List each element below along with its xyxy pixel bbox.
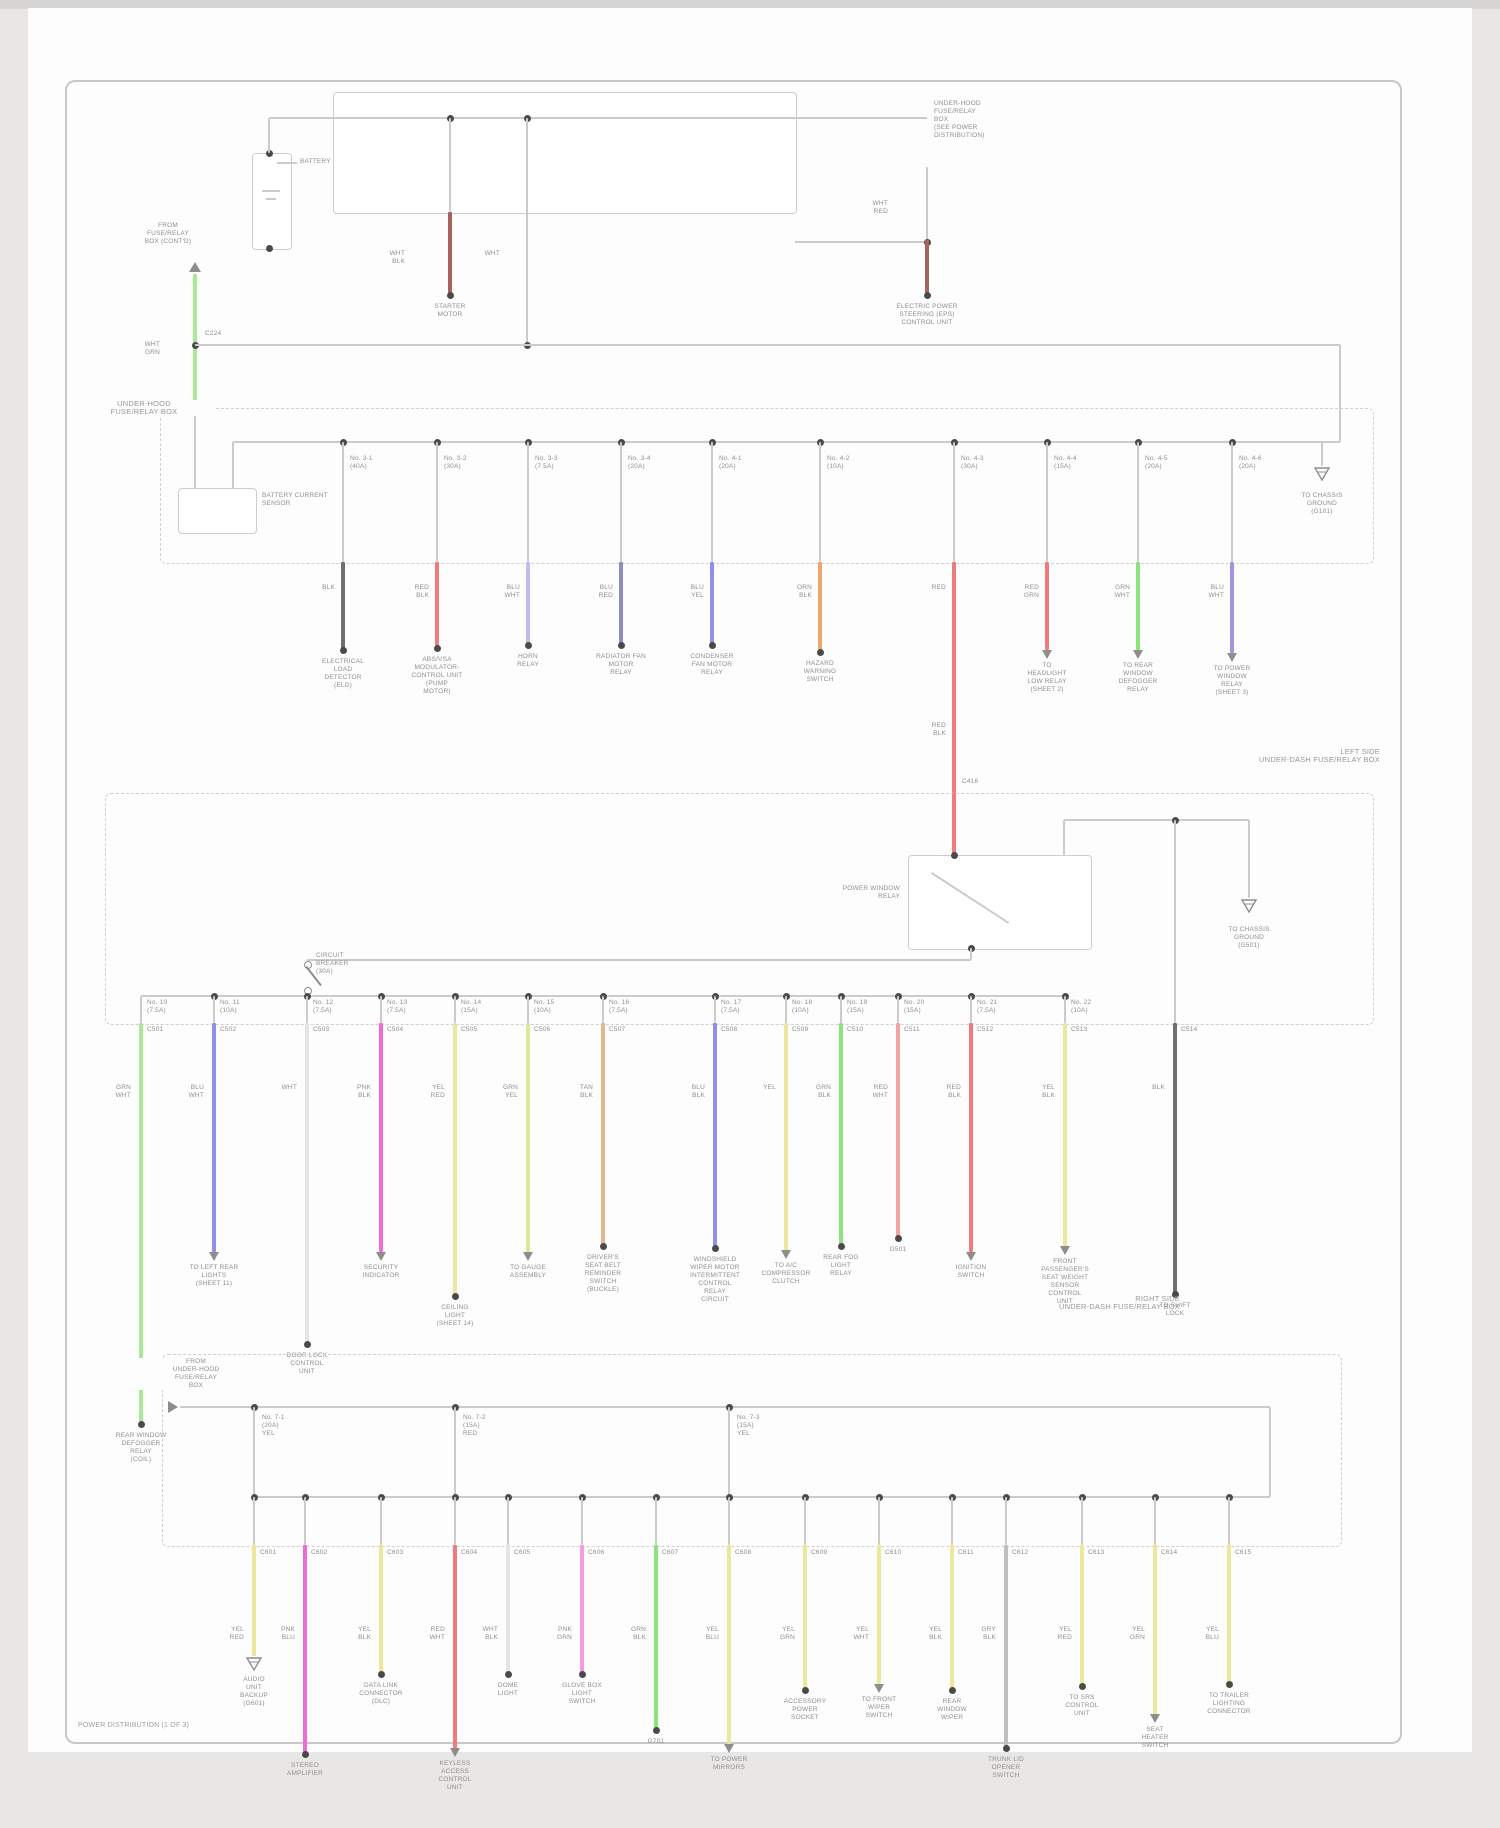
wire-color-label: GRN WHT	[116, 1084, 131, 1100]
terminal-dot	[452, 1293, 459, 1300]
wire-segment	[1005, 1497, 1007, 1545]
wire-segment	[714, 996, 716, 1023]
wire-color-label: WHT GRN	[145, 341, 160, 357]
wire-colored	[526, 1023, 530, 1252]
wire-color-label: YEL	[763, 1084, 776, 1092]
fuse-label: No. 3-4 (20A)	[628, 455, 651, 471]
wire-colored	[1173, 1023, 1177, 1294]
wire-segment	[380, 996, 382, 1023]
wire-color-label: PNK GRN	[557, 1626, 572, 1642]
fuse-label: No. 4-6 (20A)	[1239, 455, 1262, 471]
battery-current-sensor-box	[178, 488, 257, 534]
wire-colored	[877, 1545, 881, 1684]
wire-color-label: RED	[932, 584, 946, 592]
wire-segment	[970, 996, 972, 1023]
connector-arrow-icon	[1133, 650, 1143, 659]
component-label: KEYLESS ACCESS CONTROL UNIT	[385, 1760, 525, 1792]
wire-segment	[728, 1497, 730, 1545]
wire-color-label: WHT RED	[873, 200, 888, 216]
wire-color-label: YEL GRN	[1130, 1626, 1145, 1642]
terminal-dot	[1079, 1683, 1086, 1690]
connector-id-label: C601	[260, 1549, 276, 1557]
component-label: TO SRS CONTROL UNIT	[1012, 1694, 1152, 1718]
connector-id-label: C501	[147, 1026, 163, 1034]
terminal-dot	[138, 1421, 145, 1428]
wire-color-label: BLU WHT	[189, 1084, 204, 1100]
wire-color-label: RED WHT	[873, 1084, 888, 1100]
wire-segment	[840, 996, 842, 1023]
component-label: REAR FOG LIGHT RELAY	[771, 1254, 911, 1278]
connector-id-label: C511	[904, 1026, 920, 1034]
connector-arrow-icon	[1060, 1246, 1070, 1255]
connector-id-label: C614	[1161, 1549, 1177, 1557]
connector-arrow-icon	[874, 1684, 884, 1693]
wire-segment	[1228, 1497, 1230, 1545]
fuse-label: No. 19 (15A)	[847, 999, 867, 1015]
wire-colored	[710, 562, 714, 645]
driver-underdash-box-outline	[105, 793, 1374, 1025]
wire-segment	[926, 167, 928, 240]
connector-id-label: C613	[1088, 1549, 1104, 1557]
connector-id-label: C416	[962, 778, 978, 786]
wire-colored	[1227, 1545, 1231, 1684]
wire-colored	[1230, 562, 1234, 653]
wire-color-label: BLU BLK	[692, 1084, 705, 1100]
component-label: STARTER MOTOR	[380, 303, 520, 319]
relay-label: POWER WINDOW RELAY	[843, 885, 900, 901]
label-leader-line	[277, 162, 297, 164]
wire-dark-red	[925, 240, 929, 293]
wire-color-label: WHT	[282, 1084, 297, 1092]
wire-color-label: YEL BLU	[706, 1626, 719, 1642]
component-label: G501	[828, 1246, 968, 1254]
wire-colored	[713, 1023, 717, 1248]
connector-id-label: C605	[514, 1549, 530, 1557]
relay-terminal-dot	[951, 852, 958, 859]
terminal-dot	[895, 1235, 902, 1242]
wire-colored	[839, 1023, 843, 1246]
connector-id-label: C612	[1012, 1549, 1028, 1557]
fuse-label: No. 18 (10A)	[792, 999, 812, 1015]
wire-color-label: RED BLK	[932, 722, 946, 738]
wire-segment	[1248, 820, 1250, 898]
wire-segment	[436, 442, 438, 562]
page-caption: POWER DISTRIBUTION (1 OF 3)	[78, 1722, 189, 1730]
wire-segment	[819, 442, 821, 562]
component-label: TRUNK LID OPENER SWITCH	[936, 1756, 1076, 1780]
connector-id-label: C604	[461, 1549, 477, 1557]
connector-id-label: C508	[721, 1026, 737, 1034]
connector-arrow-icon	[376, 1252, 386, 1261]
wire-color-label: YEL GRN	[780, 1626, 795, 1642]
component-label: GLOVE BOX LIGHT SWITCH	[512, 1682, 652, 1706]
wire-segment	[213, 996, 215, 1023]
fuse-label: No. 7-1 (20A) YEL	[262, 1414, 285, 1438]
section-caption: RIGHT SIDE UNDER-DASH FUSE/RELAY BOX	[1059, 1295, 1180, 1311]
wire-colored	[601, 1023, 605, 1246]
section-caption: LEFT SIDE UNDER-DASH FUSE/RELAY BOX	[1259, 748, 1380, 764]
wire-colored	[303, 1545, 307, 1754]
inline-connector-icon	[189, 262, 201, 272]
terminal-dot	[817, 649, 824, 656]
fuse-label: No. 4-3 (30A)	[961, 455, 984, 471]
wire-segment	[1269, 1407, 1271, 1497]
terminal-dot	[505, 1671, 512, 1678]
fuse-label: No. 11 (10A)	[220, 999, 240, 1015]
diagram-canvas: BATTERYUNDER-HOOD FUSE/RELAY BOX (SEE PO…	[0, 0, 1500, 1828]
connector-id-label: C611	[958, 1549, 974, 1557]
wire-segment	[1137, 442, 1139, 562]
source-connector-label: FROM UNDER-HOOD FUSE/RELAY BOX	[126, 1358, 266, 1390]
relay-output-bus	[307, 959, 971, 961]
wire-segment	[655, 1497, 657, 1545]
connector-id-label: C510	[847, 1026, 863, 1034]
wire-segment	[268, 118, 270, 153]
ground-icon	[245, 1656, 263, 1672]
wire-colored	[453, 1545, 457, 1748]
terminal-dot	[712, 1245, 719, 1252]
wire-segment	[140, 996, 142, 1023]
connector-id-label: C608	[735, 1549, 751, 1557]
wire-colored	[379, 1023, 383, 1252]
wire-colored	[379, 1545, 383, 1674]
wire-segment	[785, 996, 787, 1023]
connector-arrow-icon	[966, 1252, 976, 1261]
terminal-dot	[302, 1751, 309, 1758]
inline-connector-icon	[168, 1401, 178, 1413]
wire-segment	[711, 442, 713, 562]
fuse-label: No. 14 (15A)	[461, 999, 481, 1015]
terminal-dot	[802, 1687, 809, 1694]
connector-arrow-icon	[209, 1252, 219, 1261]
component-label: SEAT HEATER SWITCH	[1085, 1726, 1225, 1750]
terminal-dot	[618, 642, 625, 649]
component-label: REAR WINDOW WIPER	[882, 1698, 1022, 1722]
wire-segment	[878, 1497, 880, 1545]
wire-color-label: GRN BLK	[631, 1626, 646, 1642]
wire-color-label: BLK	[322, 584, 335, 592]
terminal-dot	[600, 1243, 607, 1250]
bus-line	[195, 344, 1340, 346]
wire-colored	[252, 1545, 256, 1656]
wire-color-label: BLK	[1152, 1084, 1165, 1092]
wire-color-label: GRN BLK	[816, 1084, 831, 1100]
wire-segment	[454, 1407, 456, 1497]
terminal-dot	[579, 1671, 586, 1678]
wire-color-label: GRN YEL	[503, 1084, 518, 1100]
connector-id-label: C504	[387, 1026, 403, 1034]
wire-segment	[728, 1407, 730, 1497]
connector-id-label: C607	[662, 1549, 678, 1557]
terminal-dot	[434, 645, 441, 652]
wire-color-label: YEL RED	[431, 1084, 445, 1100]
wire-color-label: PNK BLK	[357, 1084, 371, 1100]
wire-color-label: TAN BLK	[580, 1084, 593, 1100]
terminal-dot	[653, 1727, 660, 1734]
wire-colored	[1063, 1023, 1067, 1246]
wire-dark-red	[448, 212, 452, 293]
terminal-dot	[709, 642, 716, 649]
bus-line	[233, 441, 1340, 443]
wire-colored	[506, 1545, 510, 1674]
wire-colored	[580, 1545, 584, 1674]
component-label: TO LEFT REAR LIGHTS (SHEET 11)	[144, 1264, 284, 1288]
wire-color-label: YEL WHT	[854, 1626, 869, 1642]
battery-cell-mark	[262, 190, 280, 192]
wire-segment	[306, 996, 308, 1023]
junction-dot	[447, 292, 454, 299]
fuse-label: No. 7-2 (15A) RED	[463, 1414, 486, 1438]
wire-color-label: YEL RED	[1058, 1626, 1072, 1642]
connector-id-label: C609	[811, 1549, 827, 1557]
fuse-label: No. 10 (7.5A)	[147, 999, 167, 1015]
wire-colored	[526, 562, 530, 645]
wire-segment	[232, 442, 234, 490]
connector-id-label: C514	[1181, 1026, 1197, 1034]
wire-colored	[1004, 1545, 1008, 1748]
wire-colored	[969, 1023, 973, 1252]
bus-line	[795, 241, 927, 243]
wire-segment	[620, 442, 622, 562]
connector-id-label: C224	[205, 330, 221, 338]
terminal-dot	[378, 1671, 385, 1678]
source-connector-label: FROM FUSE/RELAY BOX (CONT'D)	[98, 222, 238, 246]
wire-color-label: BLU YEL	[691, 584, 704, 600]
connector-id-label: C615	[1235, 1549, 1251, 1557]
wire-colored	[727, 1545, 731, 1744]
wire-color-label: YEL RED	[230, 1626, 244, 1642]
component-label: TO TRAILER LIGHTING CONNECTOR	[1159, 1692, 1299, 1716]
wire-segment	[454, 996, 456, 1023]
wire-segment	[526, 118, 528, 345]
connector-id-label: C506	[534, 1026, 550, 1034]
wire-colored	[784, 1023, 788, 1250]
connector-id-label: C610	[885, 1549, 901, 1557]
wire-colored	[619, 562, 623, 645]
wire-segment	[1046, 442, 1048, 562]
wire-colored	[305, 1023, 309, 1344]
component-label: STEREO AMPLIFIER	[235, 1762, 375, 1778]
wire-colored	[453, 1023, 457, 1296]
fuse-label: No. 22 (10A)	[1071, 999, 1091, 1015]
connector-id-label: C603	[387, 1549, 403, 1557]
wire-color-label: YEL BLU	[1206, 1626, 1219, 1642]
ground-icon	[1240, 898, 1258, 914]
wire-segment	[1154, 1497, 1156, 1545]
fuse-label: No. 4-4 (15A)	[1054, 455, 1077, 471]
wire-segment	[953, 442, 955, 562]
connector-id-label: C606	[588, 1549, 604, 1557]
component-label: SECURITY INDICATOR	[311, 1264, 451, 1280]
wiring-diagram-page: BATTERYUNDER-HOOD FUSE/RELAY BOX (SEE PO…	[0, 0, 1500, 1828]
bus-line	[1064, 819, 1249, 821]
sensor-label: BATTERY CURRENT SENSOR	[262, 492, 328, 508]
wire-color-label: RED GRN	[1024, 584, 1039, 600]
connector-id-label: C503	[313, 1026, 329, 1034]
wire-color-label: YEL BLK	[1042, 1084, 1055, 1100]
connector-id-label: C512	[977, 1026, 993, 1034]
connector-arrow-icon	[450, 1748, 460, 1757]
component-label: TO POWER MIRRORS	[659, 1756, 799, 1772]
wire-segment	[507, 1497, 509, 1545]
wire-segment	[602, 996, 604, 1023]
connector-id-label: C509	[792, 1026, 808, 1034]
component-label: CEILING LIGHT (SHEET 14)	[385, 1304, 525, 1328]
wire-color-label: RED BLK	[947, 1084, 961, 1100]
component-label: TO POWER WINDOW RELAY (SHEET 3)	[1162, 665, 1302, 697]
wire-segment	[449, 118, 451, 212]
wire-segment	[1081, 1497, 1083, 1545]
wire-segment	[454, 1497, 456, 1545]
wire-colored	[1080, 1545, 1084, 1686]
fuse-label: No. 12 (7.5A)	[313, 999, 333, 1015]
fuse-label: No. 3-1 (40A)	[350, 455, 373, 471]
wire-segment	[342, 442, 344, 562]
wire-color-label: BLU WHT	[505, 584, 520, 600]
bus-line	[1232, 441, 1322, 443]
terminal-dot	[304, 1341, 311, 1348]
wire-colored	[818, 562, 822, 652]
wire-color-label: GRY BLK	[981, 1626, 996, 1642]
fuse-label: No. 16 (7.5A)	[609, 999, 629, 1015]
fuse-label: No. 20 (15A)	[904, 999, 924, 1015]
wire-segment	[253, 1497, 255, 1545]
wire-colored	[803, 1545, 807, 1690]
component-label: G701	[586, 1738, 726, 1746]
wire-segment	[380, 1497, 382, 1545]
wire-color-label: BLU WHT	[1209, 584, 1224, 600]
fuse-box-name-label: UNDER-HOOD FUSE/RELAY BOX	[74, 400, 214, 416]
wire-color-label: RED BLK	[415, 584, 429, 600]
battery-symbol	[252, 153, 292, 250]
wire-color-label: GRN WHT	[1115, 584, 1130, 600]
terminal-dot	[340, 647, 347, 654]
wire-colored	[212, 1023, 216, 1252]
fuse-label: No. 15 (10A)	[534, 999, 554, 1015]
connector-arrow-icon	[1227, 653, 1237, 662]
battery-negative-terminal	[266, 245, 273, 252]
terminal-dot	[525, 642, 532, 649]
wire-colored	[896, 1023, 900, 1238]
wire-segment	[804, 1497, 806, 1545]
battery-cell-mark	[266, 198, 276, 200]
relay-box	[908, 855, 1092, 950]
wire-color-label: ORN BLK	[797, 584, 812, 600]
wire-colored	[341, 562, 345, 650]
wire-colored	[950, 1545, 954, 1690]
wire-segment	[581, 1497, 583, 1545]
wire-segment	[527, 996, 529, 1023]
wire-segment	[1063, 820, 1065, 855]
wire-colored	[952, 562, 956, 793]
wire-segment	[253, 1407, 255, 1497]
connector-id-label: C502	[220, 1026, 236, 1034]
wire-color-label: WHT	[485, 250, 500, 258]
terminal-dot	[949, 1687, 956, 1694]
wire-color-label: YEL BLK	[358, 1626, 371, 1642]
fuse-label: No. 3-2 (30A)	[444, 455, 467, 471]
ground-label: TO CHASSIS GROUND (G101)	[1252, 492, 1392, 516]
fuse-label: No. 7-3 (15A) YEL	[737, 1414, 760, 1438]
fuse-label: No. 17 (7.5A)	[721, 999, 741, 1015]
wire-segment	[1174, 820, 1176, 1023]
fusible-link-box	[333, 92, 797, 214]
terminal-dot	[1226, 1681, 1233, 1688]
wire-segment	[951, 1497, 953, 1545]
wire-colored	[1136, 562, 1140, 650]
connector-arrow-icon	[1042, 650, 1052, 659]
wire-color-label: WHT BLK	[390, 250, 405, 266]
wire-colored	[654, 1545, 658, 1730]
connector-id-label: C505	[461, 1026, 477, 1034]
wire-colored	[1153, 1545, 1157, 1714]
fuse-label: No. 4-1 (20A)	[719, 455, 742, 471]
wire-segment	[304, 1497, 306, 1545]
wire-red	[952, 793, 956, 855]
fuse-label: No. 4-5 (20A)	[1145, 455, 1168, 471]
wire-segment	[1064, 996, 1066, 1023]
wire-segment	[1231, 442, 1233, 562]
component-label: HAZARD WARNING SWITCH	[750, 660, 890, 684]
passenger-underdash-box-outline	[162, 1354, 1342, 1547]
wire-color-label: YEL BLK	[929, 1626, 942, 1642]
wire-color-label: BLU RED	[599, 584, 613, 600]
fuse-label: No. 4-2 (10A)	[827, 455, 850, 471]
underhood-box-destination-label: UNDER-HOOD FUSE/RELAY BOX (SEE POWER DIS…	[934, 100, 985, 140]
fuse-label: No. 3-3 (7.5A)	[535, 455, 558, 471]
wire-segment	[897, 996, 899, 1023]
wire-segment	[527, 442, 529, 562]
fuse-label: No. 13 (7.5A)	[387, 999, 407, 1015]
distribution-bus	[254, 1496, 1270, 1498]
ground-icon	[1313, 466, 1331, 482]
wire-segment	[1321, 442, 1323, 466]
terminal-dot	[1003, 1745, 1010, 1752]
wire-color-label: RED WHT	[430, 1626, 445, 1642]
battery-label: BATTERY	[300, 158, 331, 166]
connector-arrow-icon	[523, 1252, 533, 1261]
connector-id-label: C513	[1071, 1026, 1087, 1034]
junction-dot	[924, 292, 931, 299]
breaker-label: CIRCUIT BREAKER (30A)	[316, 952, 348, 976]
component-label: ELECTRIC POWER STEERING (EPS) CONTROL UN…	[857, 303, 997, 327]
wire-colored	[1045, 562, 1049, 650]
wire-color-label: PNK BLU	[281, 1626, 295, 1642]
connector-id-label: C507	[609, 1026, 625, 1034]
wire-color-label: WHT BLK	[483, 1626, 498, 1642]
component-label: DATA LINK CONNECTOR (DLC)	[311, 1682, 451, 1706]
ground-label: TO CHASSIS GROUND (G501)	[1179, 926, 1319, 950]
bus-line	[269, 117, 927, 119]
fuse-label: No. 21 (7.5A)	[977, 999, 997, 1015]
connector-id-label: C602	[311, 1549, 327, 1557]
wire-colored	[435, 562, 439, 648]
connector-arrow-icon	[724, 1744, 734, 1753]
